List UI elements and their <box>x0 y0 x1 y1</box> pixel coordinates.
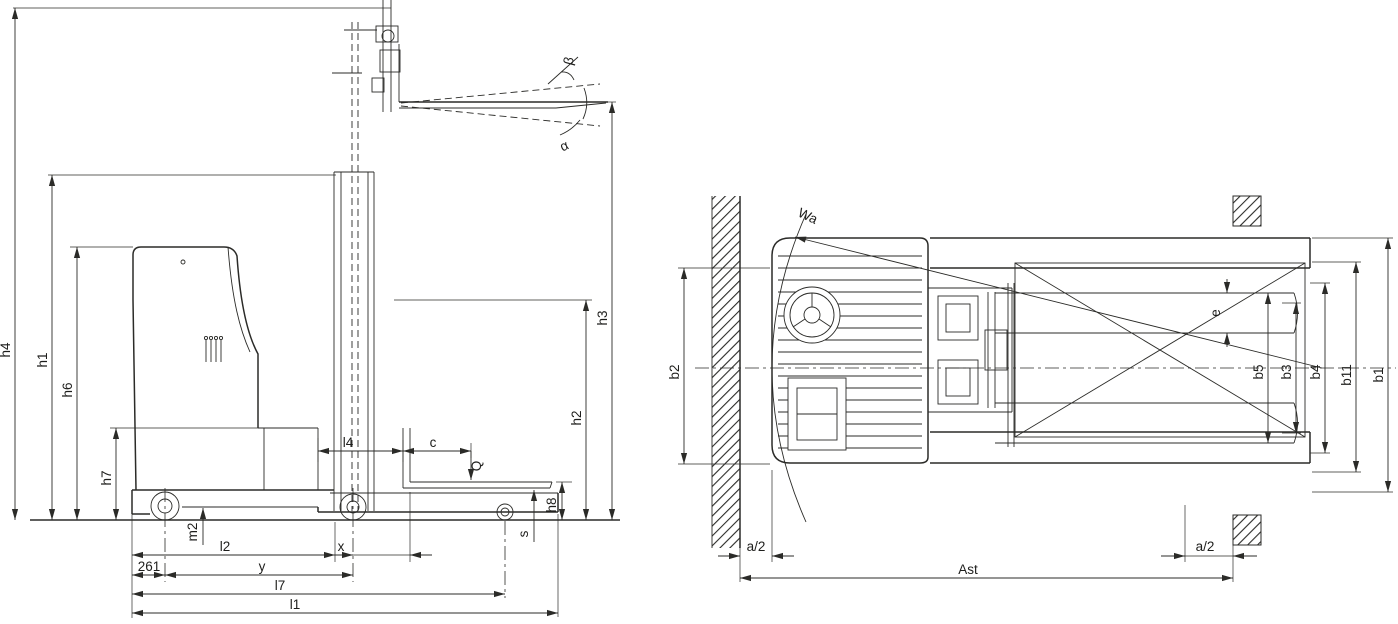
aisle-dimensions: a/2 a/2 Ast <box>718 539 1257 578</box>
reach-truck-dimension-diagram: β α <box>0 0 1398 624</box>
dim-label-y: y <box>259 559 266 574</box>
dim-label-h8: h8 <box>544 497 559 512</box>
dim-label-l4: l4 <box>343 435 354 450</box>
side-vertical-dimensions: h4 h1 h6 h7 h3 h2 h8 m2 s Q <box>0 8 612 545</box>
dim-label-h1: h1 <box>35 352 50 367</box>
rack-block-top <box>1233 196 1261 226</box>
dim-label-s: s <box>516 530 531 537</box>
dim-label-h2: h2 <box>569 410 584 425</box>
fork-lowered <box>403 428 552 488</box>
pallet <box>1015 263 1305 437</box>
dim-label-ast: Ast <box>958 562 978 577</box>
dim-label-a2-left: a/2 <box>747 539 766 554</box>
battery-console <box>788 378 846 450</box>
dim-label-b5: b5 <box>1251 364 1266 379</box>
dim-label-l2: l2 <box>220 539 231 554</box>
aisle-wall <box>712 196 740 548</box>
dim-label-q: Q <box>469 461 484 472</box>
dim-label-h3: h3 <box>595 310 610 325</box>
chassis <box>132 490 558 520</box>
dim-label-b1: b1 <box>1371 367 1386 382</box>
fork-raised <box>399 44 608 135</box>
dim-label-e: e <box>1208 309 1223 317</box>
dim-label-c: c <box>430 435 437 450</box>
dim-label-wa: Wa <box>796 205 821 227</box>
dim-label-h6: h6 <box>60 382 75 397</box>
dim-label-alpha: α <box>557 137 571 154</box>
cabin <box>133 247 318 490</box>
dim-label-261: 261 <box>138 559 161 574</box>
dim-label-b4: b4 <box>1308 364 1323 380</box>
dim-label-beta: β <box>560 55 577 67</box>
mast-carriage-top <box>928 288 1012 412</box>
side-view: β α <box>0 0 620 618</box>
control-levers <box>181 260 223 362</box>
dim-label-m2: m2 <box>185 523 200 542</box>
dim-label-b11: b11 <box>1339 364 1354 386</box>
dim-label-l1: l1 <box>290 597 301 612</box>
dim-label-b2: b2 <box>667 364 682 379</box>
side-extension-lines <box>13 8 616 618</box>
top-width-dimensions: b2 e b5 b3 b4 b11 b1 <box>667 238 1388 492</box>
dim-label-x: x <box>338 539 345 554</box>
dim-label-b3: b3 <box>1279 364 1294 379</box>
truck-body-top <box>772 238 928 463</box>
rack-block-bottom <box>1233 515 1261 545</box>
technical-drawing-page: β α <box>0 0 1398 624</box>
top-extension-lines <box>678 238 1393 582</box>
dim-label-a2-right: a/2 <box>1196 539 1215 554</box>
dim-label-h7: h7 <box>99 470 114 485</box>
dim-label-h4: h4 <box>0 342 13 358</box>
dim-label-l7: l7 <box>275 578 286 593</box>
steering-wheel <box>784 287 840 343</box>
top-view: Wa <box>667 196 1396 582</box>
